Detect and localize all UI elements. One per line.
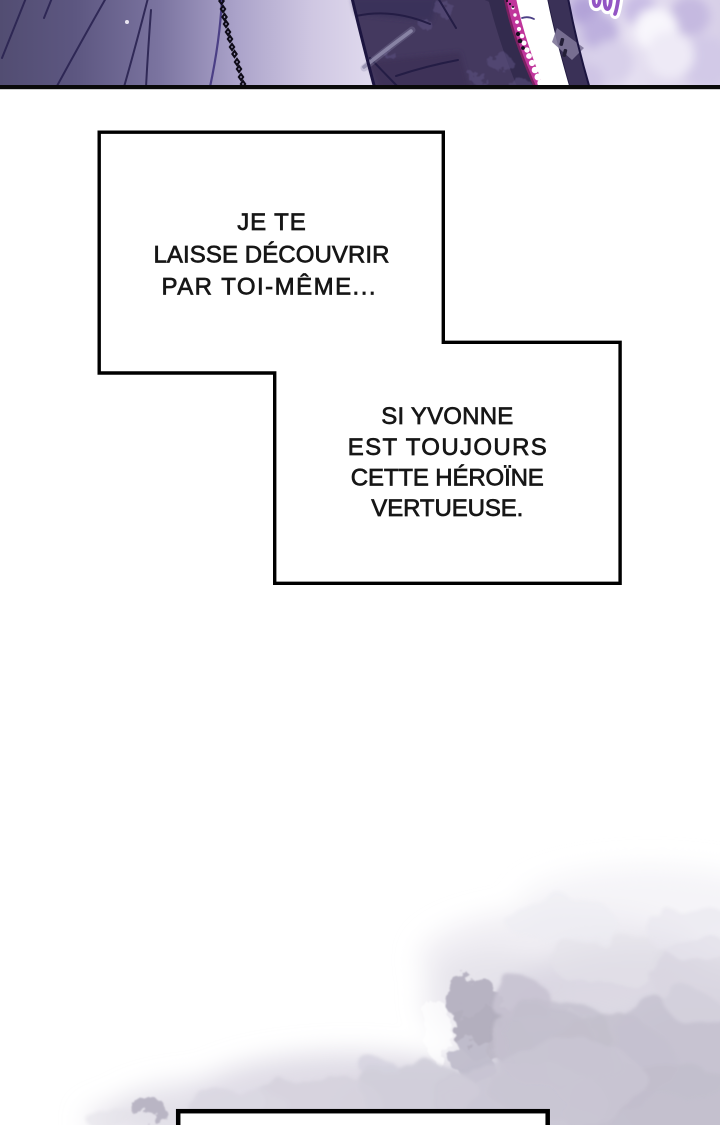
svg-text:SI YVONNE: SI YVONNE — [381, 403, 513, 430]
svg-text:LAISSE DÉCOUVRIR: LAISSE DÉCOUVRIR — [154, 242, 390, 269]
svg-text:JE TE: JE TE — [237, 209, 306, 236]
svg-text:CETTE HÉROÏNE: CETTE HÉROÏNE — [351, 465, 544, 492]
svg-text:VERTUEUSE.: VERTUEUSE. — [371, 495, 523, 522]
svg-text:EST TOUJOURS: EST TOUJOURS — [348, 434, 547, 461]
